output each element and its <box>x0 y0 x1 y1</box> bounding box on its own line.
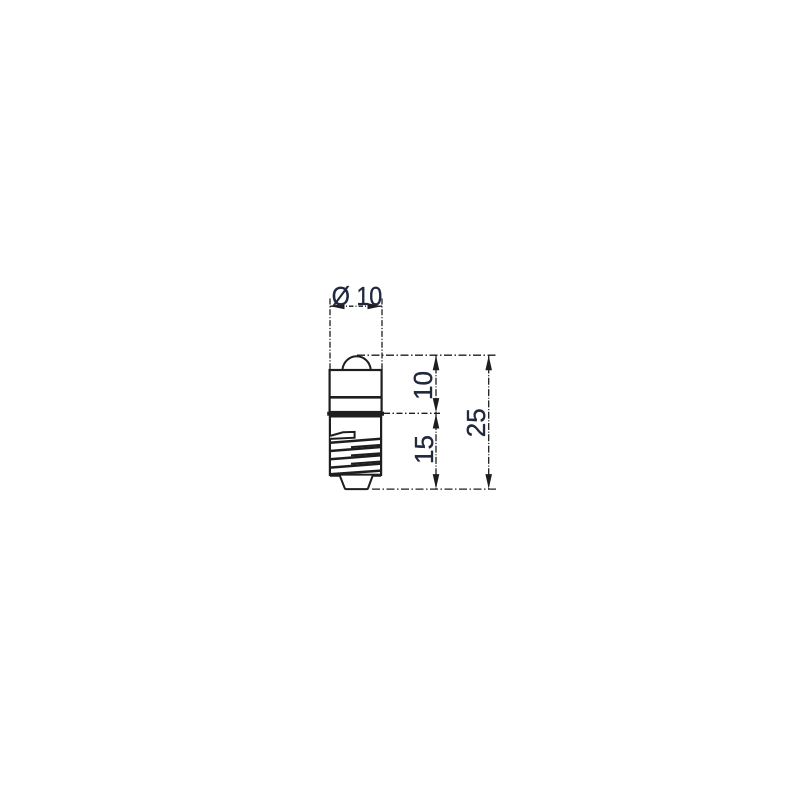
svg-text:15: 15 <box>409 435 439 464</box>
svg-text:25: 25 <box>461 408 491 437</box>
svg-text:10: 10 <box>408 371 438 400</box>
svg-text:Ø 10: Ø 10 <box>332 281 383 311</box>
